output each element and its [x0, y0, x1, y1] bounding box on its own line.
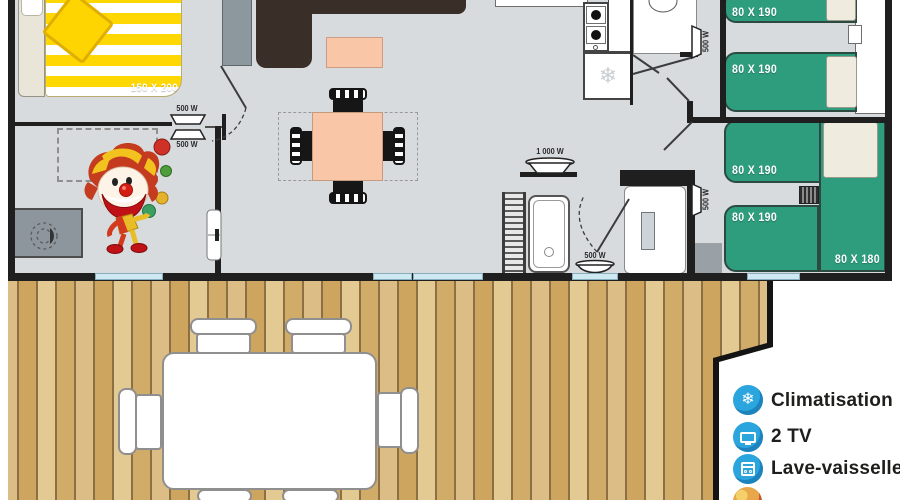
window-bathroom	[572, 273, 618, 280]
radiators	[171, 26, 701, 273]
interior-walls	[15, 0, 892, 273]
door-hall-1	[633, 57, 694, 74]
deck-table	[162, 352, 377, 490]
wall-hall-bedroom1	[720, 0, 726, 120]
legend-lave-vaisselle-label: Lave-vaisselle	[771, 458, 900, 480]
radiator-label-bathroom-500w: 500 W	[578, 251, 611, 260]
dishwasher-glyph	[741, 462, 755, 476]
floorplan-image: 150 X 200	[0, 0, 900, 500]
deck-chair-bottom-2-back	[282, 489, 339, 500]
window-master	[95, 273, 163, 280]
toilet	[649, 0, 677, 12]
door-hall-2	[667, 78, 689, 101]
deck-chair-top-1-seat	[196, 333, 251, 354]
window-living-1	[373, 273, 412, 280]
door-master	[221, 66, 246, 108]
tv-icon	[733, 422, 763, 452]
desk-chair-seat	[50, 228, 54, 244]
dishwasher-icon	[733, 454, 763, 484]
plan-linework	[0, 0, 900, 281]
door-swings	[212, 55, 694, 252]
deck-chair-left-seat	[135, 394, 162, 450]
radiator-master-bottom	[171, 130, 205, 139]
door-bathroom	[597, 199, 629, 252]
radiator-hall-lower	[692, 184, 701, 216]
legend-tv-label: 2 TV	[771, 426, 812, 448]
radiator-label-hall-lower: 500 W	[702, 186, 711, 214]
wall-between-bedrooms	[687, 117, 892, 123]
deck-chair-top-2-seat	[291, 333, 346, 354]
door-bedroom2	[664, 122, 692, 150]
radiator-label-hall-upper: 500 W	[702, 28, 711, 56]
window-living-2	[413, 273, 483, 280]
window-bedroom2	[747, 273, 800, 280]
sliding-door-master	[207, 210, 221, 260]
legend-climatisation-label: Climatisation	[771, 390, 893, 412]
deck-chair-left-back	[118, 388, 137, 455]
radiator-master-top	[171, 115, 205, 124]
radiator-label-master-above: 500 W	[170, 104, 205, 113]
radiator-label-bathroom-1000w: 1 000 W	[529, 147, 571, 156]
radiator-hall-upper	[692, 26, 701, 58]
deck-chair-bottom-1-back	[197, 489, 252, 500]
deck-chair-top-2-back	[285, 318, 352, 335]
outer-walls	[8, 0, 892, 281]
snowflake-glyph: ❄	[741, 392, 754, 408]
tv-glyph	[740, 432, 756, 443]
deck-chair-right-back	[400, 387, 419, 454]
snowflake-icon: ❄	[733, 385, 763, 415]
radiator-label-master-below: 500 W	[170, 140, 205, 149]
deck-chair-top-1-back	[190, 318, 257, 335]
